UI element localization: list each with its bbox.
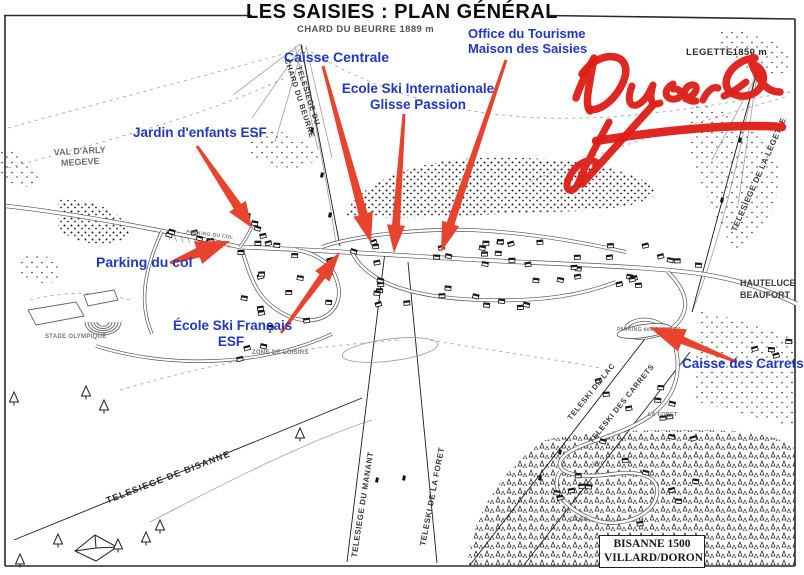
building-icon	[616, 281, 623, 286]
annotation-caisse-centrale: Caisse Centrale	[284, 49, 389, 65]
building-icon	[579, 484, 585, 489]
building-icon	[479, 245, 486, 250]
building-icon	[675, 499, 681, 504]
building-icon	[439, 293, 445, 297]
building-icon	[786, 339, 792, 344]
building-icon	[374, 260, 381, 265]
building-icon	[603, 392, 609, 397]
building-icon	[238, 250, 244, 254]
building-icon	[237, 356, 244, 361]
building-icon	[607, 244, 613, 248]
building-icon	[668, 434, 675, 439]
peak-label-chard-du-beurre: CHARD DU BEURRE 1889 m	[297, 24, 434, 35]
building-icon	[554, 490, 561, 495]
building-icon	[265, 240, 272, 246]
pine-tree-icon	[296, 428, 305, 442]
annotation-esi-line2: Glisse Passion	[336, 97, 500, 113]
building-icon	[483, 303, 489, 308]
building-icon	[393, 233, 400, 238]
building-icon	[585, 484, 591, 489]
building-icon	[241, 296, 248, 301]
annotation-caisse-des-carrets: Caisse des Carrets	[682, 356, 804, 371]
building-icon	[606, 255, 612, 260]
place-hauteluce-line1: HAUTELUCE	[740, 278, 796, 290]
pine-tree-icon	[10, 392, 19, 406]
annotation-esf-line2: ESF	[173, 334, 289, 350]
map-title: LES SAISIES : PLAN GÉNÉRAL	[0, 1, 804, 24]
building-icon	[658, 385, 664, 390]
building-icon	[657, 253, 664, 259]
building-icon	[507, 241, 514, 247]
building-icon	[669, 401, 676, 406]
building-icon	[372, 244, 378, 249]
building-icon	[498, 299, 504, 304]
place-label-stade: STADE OLYMPIQUE	[45, 334, 107, 340]
building-icon	[635, 283, 641, 288]
pine-tree-icon	[54, 534, 63, 548]
building-icon	[482, 252, 488, 256]
annotation-esf-line1: École Ski Français	[173, 318, 289, 334]
building-icon	[207, 238, 213, 243]
building-icon	[495, 251, 501, 256]
place-label-bisanne-1500: BISANNE 1500 VILLARD/DORON	[599, 535, 705, 568]
pine-tree-icon	[100, 400, 109, 414]
bisanne-box-line1: BISANNE 1500	[604, 538, 700, 552]
building-icon	[244, 213, 250, 218]
building-icon	[375, 301, 382, 307]
building-icon	[292, 253, 298, 257]
annotation-esi-line1: Ecole Ski Internationale	[336, 81, 500, 97]
pine-tree-icon	[142, 532, 151, 546]
building-icon	[600, 439, 607, 445]
building-icon	[445, 254, 452, 259]
building-icon	[255, 241, 261, 245]
building-icon	[257, 306, 263, 311]
pine-tree-icon	[82, 386, 91, 400]
building-icon	[254, 226, 261, 232]
building-icon	[445, 286, 451, 291]
building-icon	[517, 305, 523, 310]
building-icon	[637, 521, 644, 526]
place-hauteluce-line2: BEAUFORT	[740, 290, 796, 302]
building-icon	[497, 239, 503, 244]
building-icon	[509, 258, 515, 262]
annotation-office-line1: Office du Tourisme	[468, 26, 574, 41]
building-icon	[537, 240, 543, 245]
place-label-ccas: CCAS	[570, 517, 588, 523]
building-icon	[251, 221, 258, 226]
building-icon	[377, 278, 384, 283]
building-icon	[692, 479, 699, 484]
place-label-val-arly: VAL D'ARLY MEGEVE	[35, 144, 124, 171]
building-icon	[523, 302, 530, 307]
building-icon	[533, 278, 539, 283]
building-icon	[571, 265, 577, 270]
building-icon	[168, 229, 175, 235]
building-icon	[472, 294, 479, 300]
annotation-office-tourisme: Office du Tourisme Maison des Saisies	[468, 26, 574, 56]
building-icon	[374, 291, 380, 296]
place-label-parking-carrets: PARKING des CARRETS	[617, 327, 681, 333]
building-icon	[483, 241, 489, 245]
annotation-ecole-ski-francais: École Ski Français ESF	[173, 318, 289, 349]
building-icon	[525, 262, 532, 267]
building-icon	[768, 347, 774, 351]
building-icon	[574, 274, 581, 279]
building-icon	[751, 346, 758, 352]
building-icon	[286, 290, 292, 294]
place-label-hauteluce: HAUTELUCE BEAUFORT	[740, 278, 796, 301]
building-icon	[674, 259, 680, 263]
building-icon	[629, 277, 636, 282]
map-page: LES SAISIES : PLAN GÉNÉRAL CHARD DU BEUR…	[0, 0, 804, 575]
annotation-office-line2: Maison des Saisies	[468, 41, 574, 56]
building-icon	[557, 277, 564, 282]
building-icon	[297, 275, 304, 280]
building-icon	[642, 243, 649, 249]
pine-tree-icon	[156, 520, 165, 534]
peak-label-legette: LEGETTE1850 m	[686, 47, 767, 58]
building-icon	[404, 301, 410, 306]
building-icon	[695, 263, 701, 268]
building-icon	[557, 495, 564, 500]
building-icon	[303, 318, 310, 323]
building-icon	[433, 255, 439, 260]
building-icon	[667, 257, 674, 262]
annotation-ecole-ski-internationale: Ecole Ski Internationale Glisse Passion	[336, 81, 500, 112]
building-icon	[574, 255, 580, 259]
building-icon	[274, 243, 280, 248]
building-icon	[655, 398, 661, 403]
building-icon	[438, 245, 445, 251]
building-icon	[259, 272, 265, 276]
bisanne-box-line2: VILLARD/DORON	[604, 552, 700, 566]
building-icon	[575, 474, 581, 478]
building-icon	[258, 310, 265, 315]
building-icon	[622, 458, 628, 463]
building-icon	[260, 233, 267, 238]
building-icon	[482, 261, 489, 266]
place-label-la-foret: LA FORET	[648, 412, 678, 418]
building-icon	[326, 270, 333, 276]
annotation-jardin-enfants: Jardin d'enfants ESF	[133, 125, 267, 140]
place-label-vvf: VVF	[592, 462, 605, 468]
building-icon	[568, 488, 575, 493]
pine-tree-icon	[114, 539, 123, 553]
place-label-zone-loisirs: ZONE DE LOISIRS	[252, 350, 309, 356]
annotation-parking-du-col: Parking du col	[96, 254, 192, 270]
building-icon	[326, 300, 332, 305]
building-icon	[625, 406, 632, 411]
